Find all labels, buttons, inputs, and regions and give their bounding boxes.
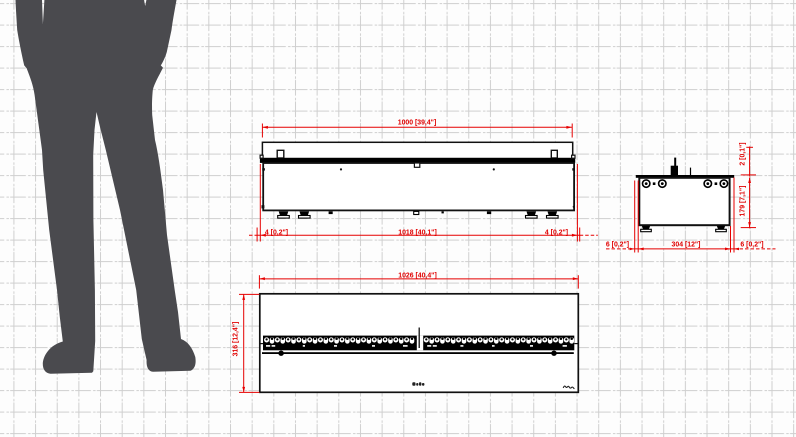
svg-text:1000 [39,4"]: 1000 [39,4"] [398, 120, 437, 127]
svg-text:179 [7,1"]: 179 [7,1"] [740, 186, 747, 217]
svg-text:2 [0,1"]: 2 [0,1"] [740, 142, 747, 165]
svg-text:6 [0,2"]: 6 [0,2"] [606, 241, 629, 248]
svg-text:1026 [40,4"]: 1026 [40,4"] [398, 272, 437, 279]
svg-text:304 [12"]: 304 [12"] [672, 241, 701, 248]
svg-text:316 [12,4"]: 316 [12,4"] [232, 322, 239, 357]
svg-text:4 [0,2"]: 4 [0,2"] [545, 229, 568, 236]
svg-text:4 [0,2"]: 4 [0,2"] [265, 229, 288, 236]
svg-text:1018 [40,1"]: 1018 [40,1"] [398, 229, 437, 236]
svg-text:6 [0,2"]: 6 [0,2"] [740, 241, 763, 248]
